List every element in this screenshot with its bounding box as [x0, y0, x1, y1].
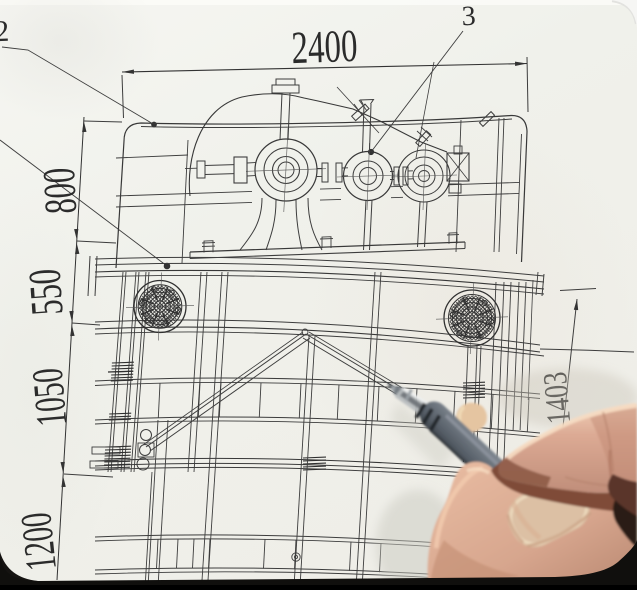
svg-text:2400: 2400: [291, 20, 359, 73]
svg-text:2: 2: [0, 15, 10, 49]
svg-text:1200: 1200: [11, 510, 66, 573]
svg-text:550: 550: [18, 267, 72, 316]
svg-text:3: 3: [461, 1, 476, 32]
svg-text:1050: 1050: [23, 366, 77, 428]
svg-text:800: 800: [33, 167, 86, 216]
